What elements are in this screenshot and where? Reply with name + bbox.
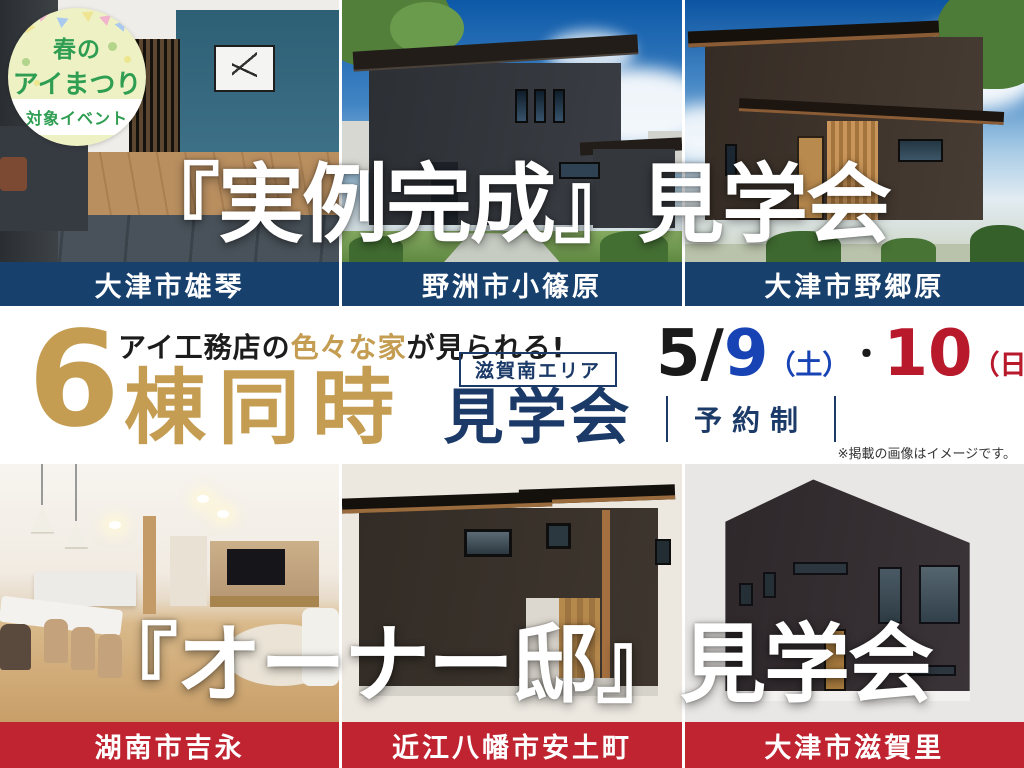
ceiling-light bbox=[217, 510, 229, 518]
window bbox=[655, 539, 672, 565]
location-bar: 大津市滋賀里 bbox=[685, 722, 1024, 768]
accent-wall bbox=[176, 10, 339, 172]
date-day2-week: （日） bbox=[973, 352, 1024, 386]
window bbox=[515, 89, 527, 123]
bottom-location-bars: 湖南市吉永 近江八幡市安土町 大津市滋賀里 bbox=[0, 722, 1024, 768]
location-bar: 大津市野郷原 bbox=[685, 262, 1024, 306]
bunting-flag bbox=[35, 11, 49, 24]
spring-festival-badge: 春の アイまつり 対象イベント bbox=[8, 8, 146, 146]
date-day1-week: （土） bbox=[768, 352, 849, 386]
tv-cabinet bbox=[210, 596, 319, 608]
television bbox=[227, 549, 285, 585]
pendant-stem bbox=[41, 464, 43, 505]
location-bar: 大津市雄琴 bbox=[0, 262, 339, 306]
reservation-note: 予約制 bbox=[666, 396, 836, 442]
campaign-band: 6 アイ工務店の色々な家が見られる! 棟同時 滋賀南エリア 見学会 5/ 9 （… bbox=[0, 306, 1024, 464]
hallway bbox=[170, 536, 207, 606]
wood-pillar bbox=[143, 516, 157, 614]
date-separator: ・ bbox=[849, 338, 883, 386]
event-word: 見学会 bbox=[436, 387, 640, 449]
event-flyer: 『実例完成』見学会 大津市雄琴 野洲市小篠原 大津市野郷原 6 アイ工務店の色々… bbox=[0, 0, 1024, 768]
confetti-dot bbox=[124, 56, 131, 63]
pendant-lamp bbox=[64, 521, 88, 549]
count-unit: 棟同時 bbox=[124, 362, 406, 456]
bunting-flag bbox=[56, 17, 69, 28]
framed-art bbox=[214, 45, 275, 92]
location-bar: 近江八幡市安土町 bbox=[342, 722, 681, 768]
area-badge: 滋賀南エリア bbox=[459, 352, 617, 387]
window bbox=[739, 583, 753, 606]
window bbox=[464, 529, 512, 557]
confetti-dot bbox=[108, 42, 117, 51]
date-day2: 10 bbox=[883, 322, 972, 386]
pendant-lamp bbox=[31, 505, 55, 533]
pendant-stem bbox=[75, 464, 77, 521]
area-group: 滋賀南エリア 見学会 bbox=[436, 352, 640, 449]
confetti-dot bbox=[34, 80, 40, 86]
window bbox=[793, 562, 847, 575]
event-dates: 5/ 9 （土） ・ 10 （日） bbox=[656, 322, 1024, 386]
top-location-bars: 大津市雄琴 野洲市小篠原 大津市野郷原 bbox=[0, 262, 1024, 306]
date-month: 5/ bbox=[656, 322, 724, 386]
bunting-flag bbox=[99, 15, 113, 27]
badge-band: 対象イベント bbox=[8, 99, 146, 135]
bunting-flag bbox=[82, 12, 95, 23]
ceiling-light bbox=[197, 495, 209, 503]
badge-line2: アイまつり bbox=[8, 64, 146, 101]
location-bar: 野洲市小篠原 bbox=[342, 262, 681, 306]
badge-label: 対象イベント bbox=[26, 105, 128, 129]
bottom-event-title: 『オーナー邸』見学会 bbox=[0, 618, 1024, 713]
window bbox=[546, 523, 571, 549]
ceiling-light bbox=[109, 521, 121, 529]
window bbox=[553, 89, 565, 123]
confetti-dot bbox=[22, 58, 30, 66]
count-number: 6 bbox=[28, 314, 120, 446]
date-day1: 9 bbox=[724, 322, 769, 386]
catch-highlight: 色々な家 bbox=[291, 331, 407, 364]
location-bar: 湖南市吉永 bbox=[0, 722, 339, 768]
top-event-title: 『実例完成』見学会 bbox=[0, 158, 1024, 253]
image-disclaimer: ※掲載の画像はイメージです。 bbox=[838, 443, 1016, 462]
window bbox=[763, 572, 777, 598]
catch-prefix: アイ工務店の bbox=[118, 331, 291, 364]
window bbox=[534, 89, 546, 123]
